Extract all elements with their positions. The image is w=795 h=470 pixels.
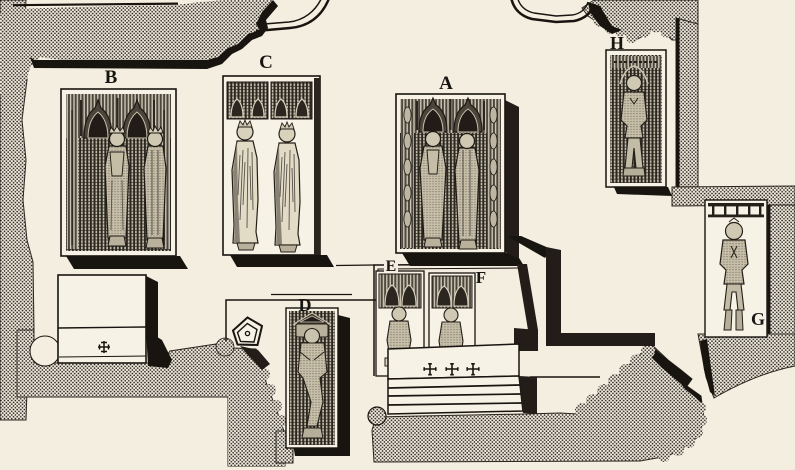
svg-text:E: E — [386, 258, 397, 275]
svg-text:D: D — [299, 295, 312, 315]
svg-text:F: F — [476, 268, 486, 287]
svg-text:G: G — [751, 309, 765, 329]
svg-text:H: H — [610, 33, 624, 53]
svg-text:B: B — [105, 67, 118, 88]
svg-text:C: C — [259, 52, 273, 73]
svg-text:A: A — [439, 73, 453, 94]
